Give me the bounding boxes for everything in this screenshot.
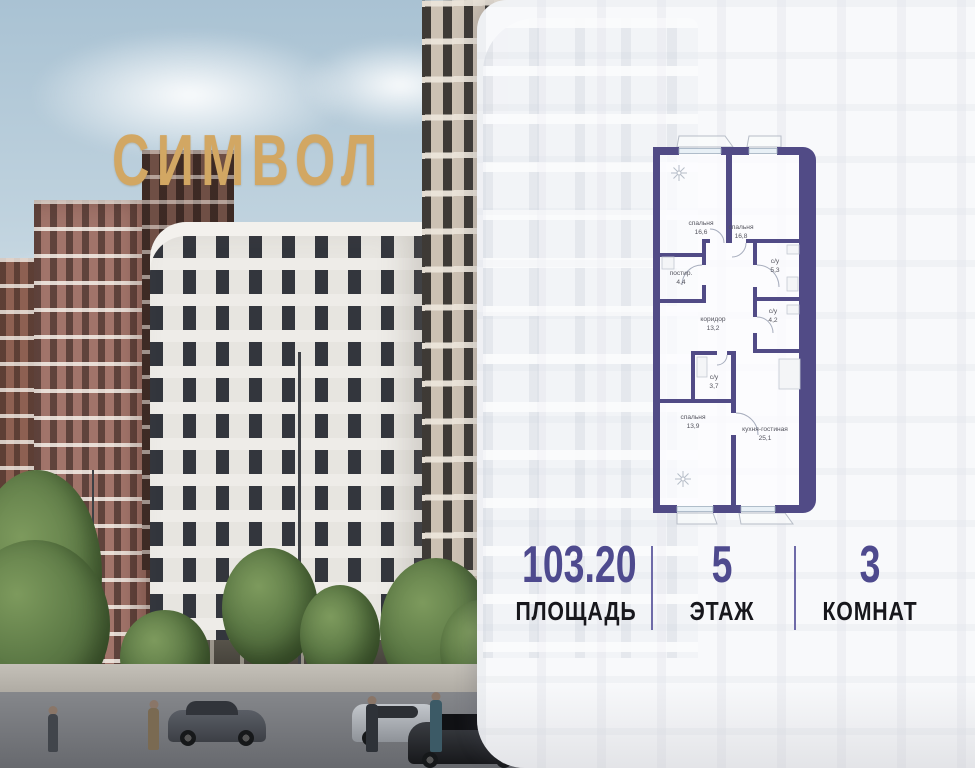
pedestrian [48,706,58,752]
pedestrian [148,700,159,752]
room-area: 25,1 [759,435,772,442]
listing-card: СИМВОЛ [0,0,975,768]
room-label: с/у [710,374,719,381]
room-area: 13,2 [707,325,720,332]
room-label: спальня [680,414,705,421]
room-area: 16,6 [695,229,708,236]
exterior-photo: СИМВОЛ [0,0,540,768]
floor-plan: спальня 16,6 спальня 16,8 постир. 4,4 с/… [653,133,816,527]
area-value: 103.20 [522,540,630,590]
room-label: кухня-гостиная [742,426,788,433]
room-label: с/у [771,258,780,265]
room-area: 5,3 [770,267,779,274]
stat-floor: 5 ЭТАЖ [647,540,797,623]
street-haze [477,682,975,768]
room-label: коридор [700,316,725,323]
rooms-label: КОМНАТ [809,599,932,623]
room-area: 4,4 [676,279,685,286]
room-label: с/у [769,308,778,315]
room-area: 16,8 [735,233,748,240]
area-label: ПЛОЩАДЬ [515,599,638,623]
room-area: 3,7 [709,383,718,390]
stat-area: 103.20 ПЛОЩАДЬ [501,540,651,623]
floor-value: 5 [668,540,776,590]
stat-rooms: 3 КОМНАТ [795,540,945,623]
room-area: 13,9 [687,423,700,430]
pedestrian [366,696,378,754]
car-sedan [168,710,266,742]
room-area: 4,2 [768,317,777,324]
pedestrian [430,692,442,754]
brand-logo: СИМВОЛ [112,120,385,202]
rooms-value: 3 [816,540,924,590]
room-label: спальня [688,220,713,227]
room-label: спальня [728,224,753,231]
sidewalk [0,664,540,694]
room-label: постир. [670,270,693,277]
floor-label: ЭТАЖ [661,599,784,623]
